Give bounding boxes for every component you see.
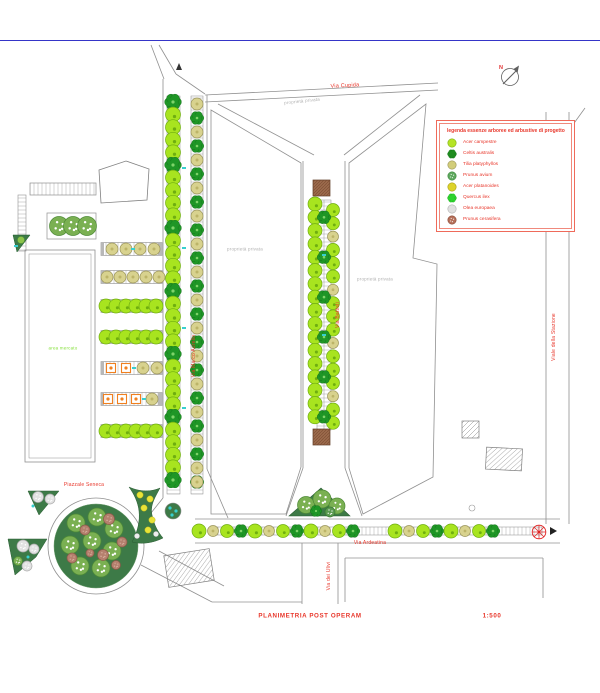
legend-title: legenda essenze arboree ed arbustive di … [447,128,566,134]
legend-clover-icon [447,149,457,159]
street-label-via-marco-aurelio: Via Marco Aurelio [191,335,197,378]
legend-item-5: Acer platanoides [447,181,566,192]
legend-circle-icon [447,138,457,148]
north-arrow-icon: N [499,65,519,86]
legend-circle-icon [447,204,457,214]
left-street [165,63,204,494]
drawing-scale: 1:500 [483,613,502,620]
parking-rows [99,243,165,439]
legend-item-7: Olea europaea [447,203,566,214]
legend-item-label: Quercus ilex [463,195,490,200]
legend-item-label: Olea europaea [463,206,495,211]
bottom-street [192,524,557,538]
top-left-block [13,161,149,252]
planimetry-sheet: N legenda essenze arboree ed arbustive d… [0,0,600,693]
legend-stipple-icon [447,171,457,181]
legend-item-6: Quercus ilex [447,192,566,203]
site-plan: N [0,0,600,693]
legend-stipple-icon [447,215,457,225]
legend-item-label: Prunus cerasifera [463,217,501,222]
square-label-piazzale-seneca: Piazzale Seneca [64,482,104,488]
street-label-via-ardeatina: Via Ardeatina [354,540,386,546]
legend-circle-icon [447,160,457,170]
area-label-market: area mercato [49,346,78,351]
legend-item-4: Prunus avium [447,170,566,181]
compass-rose-icon [532,525,546,539]
green-triangle [289,488,350,517]
plaza [8,487,181,594]
street-label-viale-della-stazione: Viale della Stazione [551,313,557,361]
legend-item-1: Acer campestre [447,137,566,148]
legend-item-2: Celtis australis [447,148,566,159]
street-label-via-dei-ulivi: Via dei Ulivi [326,562,332,591]
legend-item-label: Prunus avium [463,173,492,178]
legend-item-label: Acer campestre [463,140,497,145]
legend-item-label: Tilia platyphyllos [463,162,498,167]
legend-clover-icon [447,193,457,203]
legend-item-8: Prunus cerasifera [447,214,566,225]
top-rule [0,40,600,41]
legend-frame: legenda essenze arboree ed arbustive di … [439,123,572,229]
legend-box: legenda essenze arboree ed arbustive di … [436,120,575,232]
svg-text:N: N [499,65,503,71]
private-property-label-3: proprietà privata [357,277,393,282]
legend-circle-icon [447,182,457,192]
drawing-title: PLANIMETRIA POST OPERAM [258,613,361,620]
street-label-via-battisti: Via Battisti [335,302,341,328]
market-area [25,250,95,462]
legend-item-label: Acer platanoides [463,184,499,189]
legend-item-3: Tilia platyphyllos [447,159,566,170]
legend-rows: Acer campestreCeltis australisTilia plat… [447,137,566,225]
legend-item-label: Celtis australis [463,151,494,156]
private-property-label-2: proprietà privata [227,247,263,252]
